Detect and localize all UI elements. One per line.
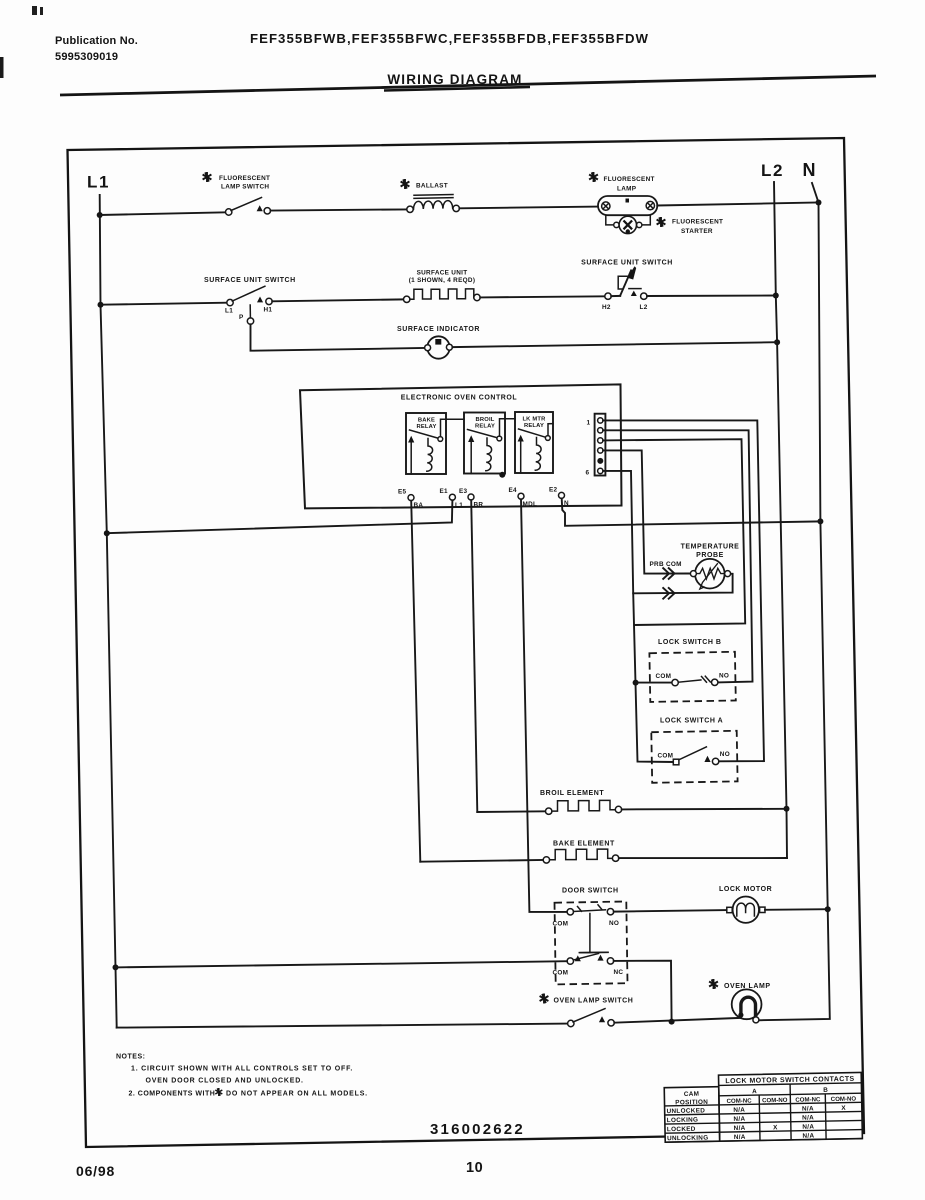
svg-text:A: A bbox=[752, 1088, 757, 1095]
svg-text:E2: E2 bbox=[549, 487, 558, 494]
svg-text:1: 1 bbox=[587, 420, 591, 427]
svg-text:BAKE ELEMENT: BAKE ELEMENT bbox=[553, 841, 615, 848]
svg-text:BA: BA bbox=[414, 502, 424, 509]
svg-text:E3: E3 bbox=[459, 488, 468, 495]
svg-text:PROBE: PROBE bbox=[696, 552, 724, 559]
svg-text:N/A: N/A bbox=[802, 1105, 814, 1112]
svg-text:ELECTRONIC OVEN CONTROL: ELECTRONIC OVEN CONTROL bbox=[401, 395, 518, 402]
svg-text:BROIL: BROIL bbox=[475, 417, 494, 423]
svg-text:FLUORESCENT: FLUORESCENT bbox=[604, 176, 655, 183]
svg-text:N/A: N/A bbox=[734, 1134, 746, 1141]
svg-text:LAMP SWITCH: LAMP SWITCH bbox=[221, 184, 269, 191]
svg-text:LAMP: LAMP bbox=[617, 186, 637, 193]
svg-text:FLUORESCENT: FLUORESCENT bbox=[672, 219, 723, 226]
svg-text:10: 10 bbox=[466, 1160, 483, 1176]
svg-text:2. COMPONENTS WITH: 2. COMPONENTS WITH bbox=[129, 1091, 216, 1098]
svg-text:Publication No.: Publication No. bbox=[55, 35, 138, 47]
svg-text:FLUORESCENT: FLUORESCENT bbox=[219, 175, 270, 182]
svg-text:SURFACE UNIT SWITCH: SURFACE UNIT SWITCH bbox=[581, 260, 673, 267]
svg-text:N/A: N/A bbox=[734, 1125, 746, 1132]
svg-text:H2: H2 bbox=[602, 304, 611, 311]
svg-text:COM-NO: COM-NO bbox=[831, 1096, 857, 1103]
svg-text:N/A: N/A bbox=[733, 1107, 745, 1114]
svg-text:LOCK SWITCH B: LOCK SWITCH B bbox=[658, 639, 722, 646]
svg-text:316002622: 316002622 bbox=[430, 1121, 525, 1138]
svg-text:N: N bbox=[803, 160, 816, 180]
svg-text:N/A: N/A bbox=[802, 1124, 814, 1131]
svg-text:L2: L2 bbox=[640, 304, 648, 311]
svg-text:N/A: N/A bbox=[733, 1116, 745, 1123]
svg-text:BR: BR bbox=[474, 502, 484, 509]
svg-text:OVEN LAMP SWITCH: OVEN LAMP SWITCH bbox=[554, 998, 634, 1005]
svg-text:DOOR SWITCH: DOOR SWITCH bbox=[562, 888, 619, 895]
svg-text:RELAY: RELAY bbox=[524, 423, 544, 429]
svg-text:BROIL ELEMENT: BROIL ELEMENT bbox=[540, 790, 604, 797]
svg-text:SURFACE INDICATOR: SURFACE INDICATOR bbox=[397, 326, 480, 333]
svg-text:COM-NC: COM-NC bbox=[726, 1097, 752, 1104]
svg-text:FEF355BFWB,FEF355BFWC,FEF355BF: FEF355BFWB,FEF355BFWC,FEF355BFDB,FEF355B… bbox=[250, 31, 649, 46]
svg-text:1. CIRCUIT SHOWN WITH ALL CON: 1. CIRCUIT SHOWN WITH ALL CONTROLS SET T… bbox=[131, 1066, 353, 1073]
svg-text:BAKE: BAKE bbox=[418, 418, 435, 424]
svg-text:COM: COM bbox=[553, 970, 569, 977]
svg-text:(1 SHOWN, 4 REQD): (1 SHOWN, 4 REQD) bbox=[409, 277, 476, 284]
svg-text:RELAY: RELAY bbox=[416, 424, 436, 430]
svg-text:COM-NO: COM-NO bbox=[762, 1097, 788, 1104]
svg-text:CAM: CAM bbox=[684, 1091, 700, 1098]
svg-text:NOTES:: NOTES: bbox=[116, 1054, 145, 1061]
svg-text:LOCK SWITCH A: LOCK SWITCH A bbox=[660, 718, 723, 725]
svg-text:X: X bbox=[841, 1105, 846, 1112]
svg-text:L1: L1 bbox=[225, 308, 233, 315]
svg-text:BALLAST: BALLAST bbox=[416, 183, 448, 190]
svg-text:P: P bbox=[239, 314, 244, 321]
svg-text:X: X bbox=[773, 1124, 778, 1131]
svg-text:6: 6 bbox=[586, 470, 590, 477]
svg-text:N: N bbox=[564, 500, 569, 507]
svg-text:E4: E4 bbox=[509, 487, 518, 494]
svg-text:N/A: N/A bbox=[802, 1114, 814, 1121]
svg-text:UNLOCKING: UNLOCKING bbox=[667, 1135, 709, 1143]
svg-text:STARTER: STARTER bbox=[681, 228, 713, 235]
svg-text:N/A: N/A bbox=[802, 1133, 814, 1140]
svg-text:RELAY: RELAY bbox=[475, 424, 495, 430]
svg-text:LK MTR: LK MTR bbox=[522, 417, 546, 423]
svg-text:PRB COM: PRB COM bbox=[650, 561, 682, 568]
svg-text:COM-NC: COM-NC bbox=[795, 1096, 821, 1103]
svg-text:DO NOT APPEAR ON ALL MODELS.: DO NOT APPEAR ON ALL MODELS. bbox=[226, 1091, 368, 1098]
svg-text:MDL: MDL bbox=[523, 501, 538, 508]
svg-text:COM: COM bbox=[656, 673, 672, 680]
svg-text:COM: COM bbox=[658, 753, 674, 760]
svg-text:LOCKING: LOCKING bbox=[667, 1117, 699, 1125]
svg-text:5995309019: 5995309019 bbox=[55, 51, 118, 63]
svg-text:SURFACE UNIT: SURFACE UNIT bbox=[417, 270, 468, 277]
svg-text:NO: NO bbox=[719, 673, 729, 680]
svg-text:LOCKED: LOCKED bbox=[667, 1126, 696, 1134]
svg-text:E5: E5 bbox=[398, 489, 407, 496]
svg-text:L1: L1 bbox=[455, 502, 463, 509]
svg-text:COM: COM bbox=[553, 921, 569, 928]
svg-text:UNLOCKED: UNLOCKED bbox=[667, 1107, 706, 1115]
svg-text:OVEN DOOR CLOSED AND UNLOCKED.: OVEN DOOR CLOSED AND UNLOCKED. bbox=[146, 1078, 304, 1085]
svg-text:06/98: 06/98 bbox=[76, 1163, 115, 1179]
svg-text:H1: H1 bbox=[264, 307, 273, 314]
svg-text:SURFACE UNIT SWITCH: SURFACE UNIT SWITCH bbox=[204, 277, 296, 284]
svg-text:NO: NO bbox=[720, 751, 730, 758]
svg-text:POSITION: POSITION bbox=[675, 1099, 708, 1107]
svg-text:L1: L1 bbox=[87, 173, 110, 192]
svg-text:NC: NC bbox=[614, 969, 624, 976]
svg-text:B: B bbox=[823, 1087, 828, 1094]
svg-text:NO: NO bbox=[609, 920, 619, 927]
svg-text:LOCK MOTOR: LOCK MOTOR bbox=[719, 886, 772, 893]
svg-text:E1: E1 bbox=[440, 488, 449, 495]
svg-text:L2: L2 bbox=[761, 161, 784, 180]
svg-text:TEMPERATURE: TEMPERATURE bbox=[681, 544, 740, 551]
